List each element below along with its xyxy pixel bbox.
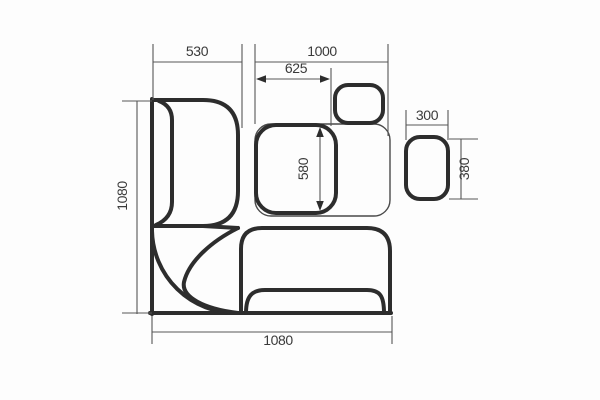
bench-bottom-outer — [241, 228, 390, 313]
bench-left-outer — [152, 100, 238, 226]
bench-bottom-backrest — [246, 290, 384, 313]
stool-right — [406, 137, 448, 199]
dim-530-label: 530 — [186, 43, 209, 59]
corner-leaf-edge — [184, 228, 238, 313]
corner-top-edge — [203, 226, 238, 228]
dim-625-label: 625 — [285, 60, 308, 76]
dim-625-arrowhead-right — [320, 75, 330, 83]
dim-300-label: 300 — [416, 107, 439, 123]
dim-1080-left-label: 1080 — [114, 181, 130, 211]
drawing-area: 530100062558010801080300380 — [0, 0, 600, 400]
dim-580-arrowhead-down — [316, 201, 324, 211]
cushion-top-small — [335, 85, 383, 123]
dim-580-label: 580 — [295, 157, 311, 180]
dim-625-arrowhead-left — [256, 75, 266, 83]
dim-580-arrowhead-up — [316, 127, 324, 137]
dim-1080-bottom-label: 1080 — [263, 332, 293, 348]
corner-bench-layout-drawing: 530100062558010801080300380 — [0, 0, 600, 400]
bench-left-backrest — [156, 101, 172, 225]
dim-1000-label: 1000 — [307, 43, 337, 59]
dim-380-label: 380 — [456, 157, 472, 180]
